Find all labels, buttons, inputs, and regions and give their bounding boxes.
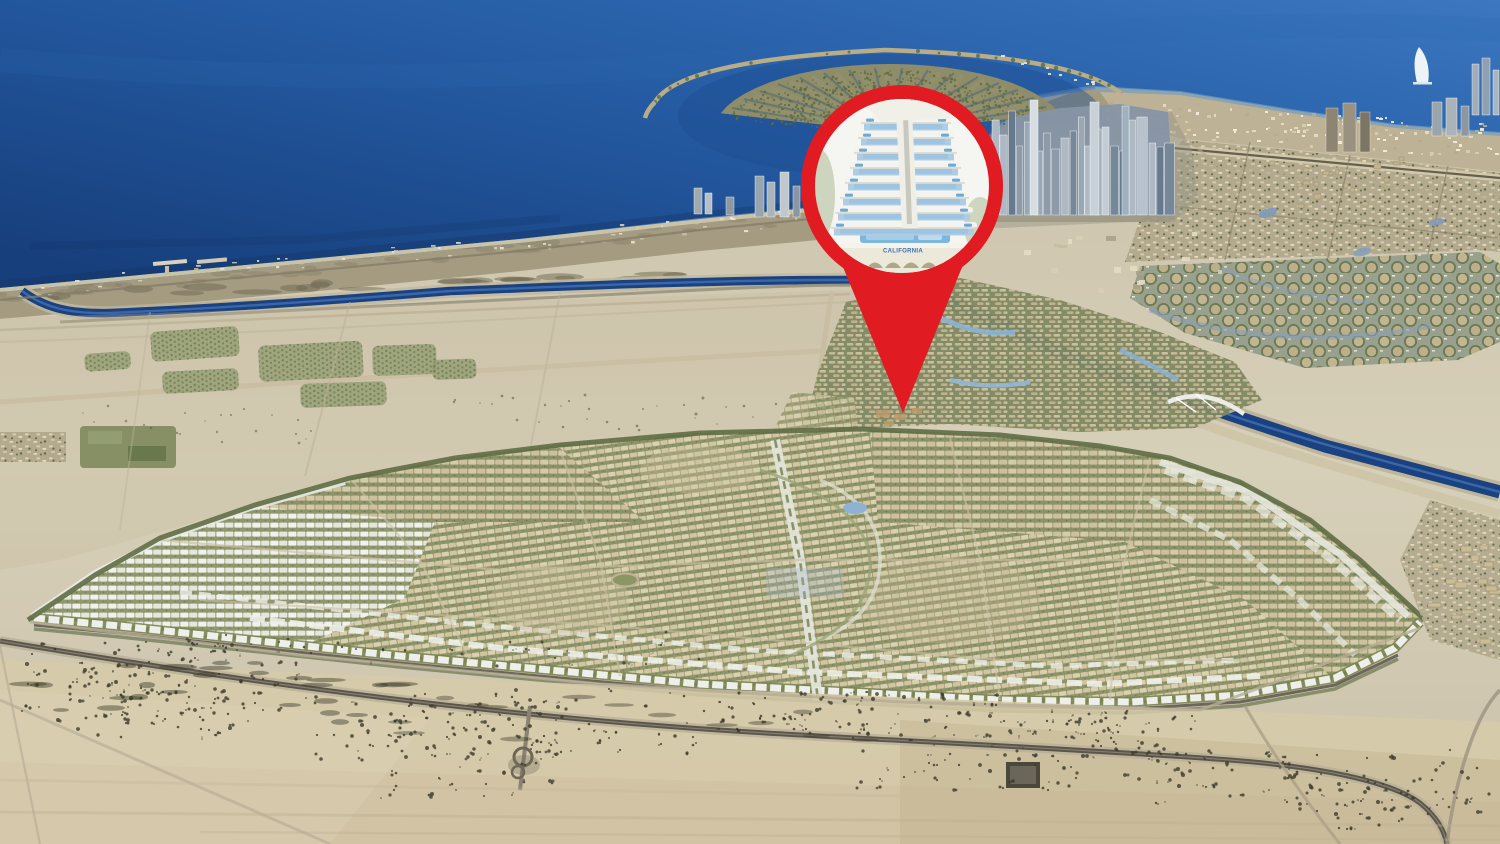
svg-text:CALIFORNIA: CALIFORNIA <box>883 249 923 255</box>
